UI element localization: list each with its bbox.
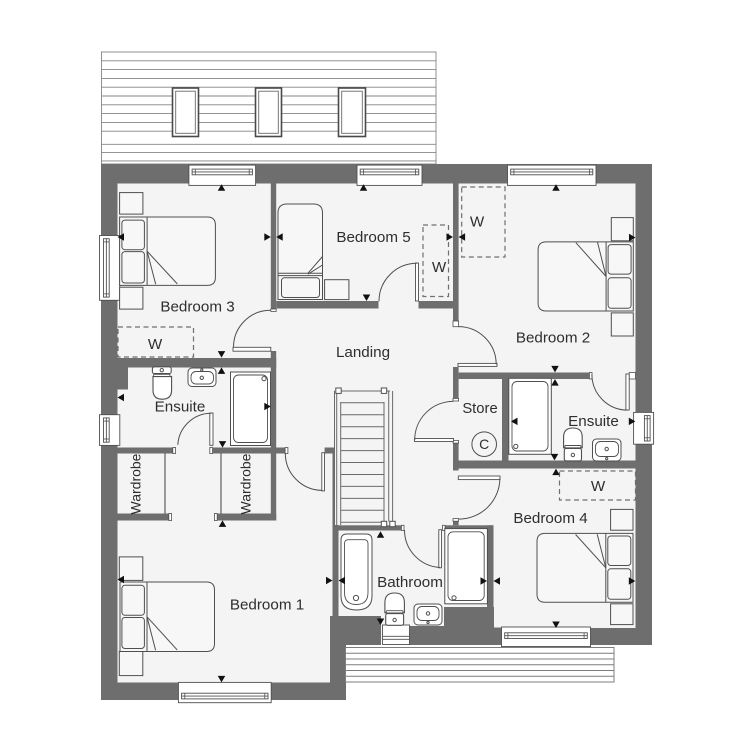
- svg-text:W: W: [432, 259, 447, 276]
- svg-text:W: W: [591, 478, 606, 495]
- svg-text:Landing: Landing: [336, 344, 390, 361]
- svg-text:Bedroom 4: Bedroom 4: [513, 510, 587, 527]
- svg-text:Bedroom 1: Bedroom 1: [230, 597, 304, 614]
- svg-text:Ensuite: Ensuite: [568, 413, 619, 430]
- svg-text:Ensuite: Ensuite: [155, 399, 206, 416]
- svg-text:Wardrobe: Wardrobe: [238, 453, 254, 514]
- svg-text:Bedroom 3: Bedroom 3: [160, 299, 234, 316]
- svg-text:W: W: [470, 214, 485, 231]
- svg-text:W: W: [148, 336, 163, 353]
- svg-text:Bathroom: Bathroom: [377, 574, 443, 591]
- svg-text:Store: Store: [462, 401, 497, 417]
- svg-text:Bedroom 5: Bedroom 5: [336, 229, 410, 246]
- svg-text:C: C: [479, 436, 489, 452]
- svg-text:Wardrobe: Wardrobe: [128, 453, 144, 514]
- svg-text:Bedroom 2: Bedroom 2: [516, 330, 590, 347]
